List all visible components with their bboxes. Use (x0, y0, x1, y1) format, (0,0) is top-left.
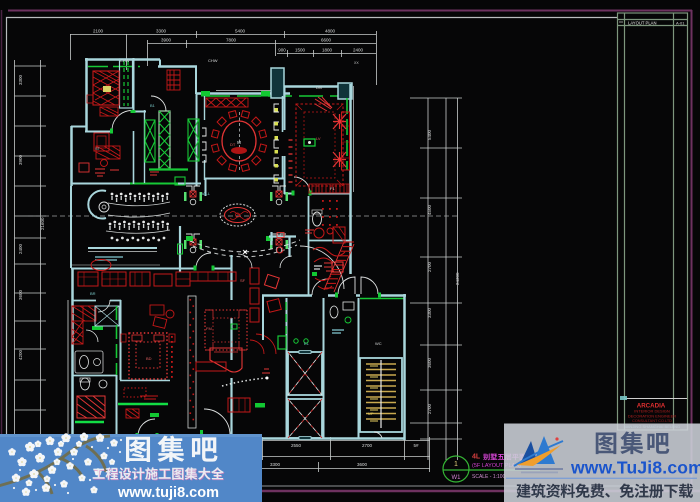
svg-text:A-01: A-01 (676, 20, 685, 25)
svg-text:CONSULTANT CO.LTD: CONSULTANT CO.LTD (632, 419, 672, 423)
svg-text:FM: FM (206, 326, 212, 331)
svg-text:2100: 2100 (93, 29, 104, 34)
svg-text:XX: XX (354, 61, 359, 65)
svg-text:B1: B1 (150, 103, 156, 108)
svg-text:WC: WC (375, 341, 382, 346)
svg-text:5400: 5400 (235, 29, 246, 34)
svg-text:2550: 2550 (291, 443, 302, 448)
svg-text:4200: 4200 (18, 349, 23, 360)
svg-text:F1: F1 (330, 186, 335, 191)
svg-text:SCALE - 1:100: SCALE - 1:100 (472, 474, 506, 480)
svg-text:5#: 5# (413, 443, 419, 448)
svg-text:7800: 7800 (226, 38, 237, 43)
svg-text:4800: 4800 (325, 29, 336, 34)
svg-text:3600: 3600 (18, 289, 23, 300)
svg-text:LAYOUT PLAN: LAYOUT PLAN (628, 20, 656, 25)
svg-text:2400: 2400 (18, 243, 23, 254)
svg-text:1800: 1800 (322, 48, 333, 53)
svg-text:UP: UP (368, 411, 374, 416)
svg-text:www.TuJi8.com: www.TuJi8.com (570, 458, 700, 478)
svg-text:DT: DT (230, 142, 236, 147)
svg-text:1: 1 (454, 461, 458, 468)
svg-text:SF: SF (240, 278, 246, 283)
svg-text:1500: 1500 (295, 48, 306, 53)
svg-text:2700: 2700 (427, 403, 432, 414)
svg-text:LV: LV (316, 136, 321, 141)
svg-text:EL: EL (304, 341, 310, 346)
svg-text:3900: 3900 (18, 154, 23, 165)
svg-text:DECORATION ENGINEER: DECORATION ENGINEER (628, 414, 676, 419)
svg-text:BR: BR (90, 291, 96, 296)
svg-text:4500: 4500 (427, 204, 432, 215)
svg-text:3900: 3900 (161, 38, 172, 43)
svg-text:2400: 2400 (353, 48, 364, 53)
svg-text:3300: 3300 (18, 74, 23, 85)
svg-text:3300: 3300 (156, 29, 167, 34)
svg-text:DN: DN (316, 85, 322, 90)
svg-text:4L: 4L (472, 454, 481, 461)
svg-text:6600: 6600 (321, 38, 332, 43)
svg-text:900: 900 (278, 48, 286, 53)
svg-text:BD: BD (146, 356, 152, 361)
svg-text:24300: 24300 (455, 272, 460, 285)
svg-text:3300: 3300 (427, 307, 432, 318)
svg-text:3600: 3600 (427, 357, 432, 368)
svg-text:2700: 2700 (427, 261, 432, 272)
svg-text:HALL: HALL (200, 191, 211, 196)
svg-text:CHW: CHW (208, 58, 218, 63)
svg-text:M: M (237, 140, 241, 145)
svg-text:21600: 21600 (40, 217, 45, 230)
svg-text:3600: 3600 (357, 462, 368, 467)
svg-text:2700: 2700 (362, 443, 373, 448)
svg-text:W1: W1 (452, 475, 462, 481)
svg-text:CHW: CHW (120, 58, 130, 63)
svg-text:www.tuji8.com: www.tuji8.com (117, 485, 219, 501)
svg-text:3300: 3300 (270, 462, 281, 467)
svg-text:5400: 5400 (427, 129, 432, 140)
svg-text:ST: ST (95, 146, 101, 151)
